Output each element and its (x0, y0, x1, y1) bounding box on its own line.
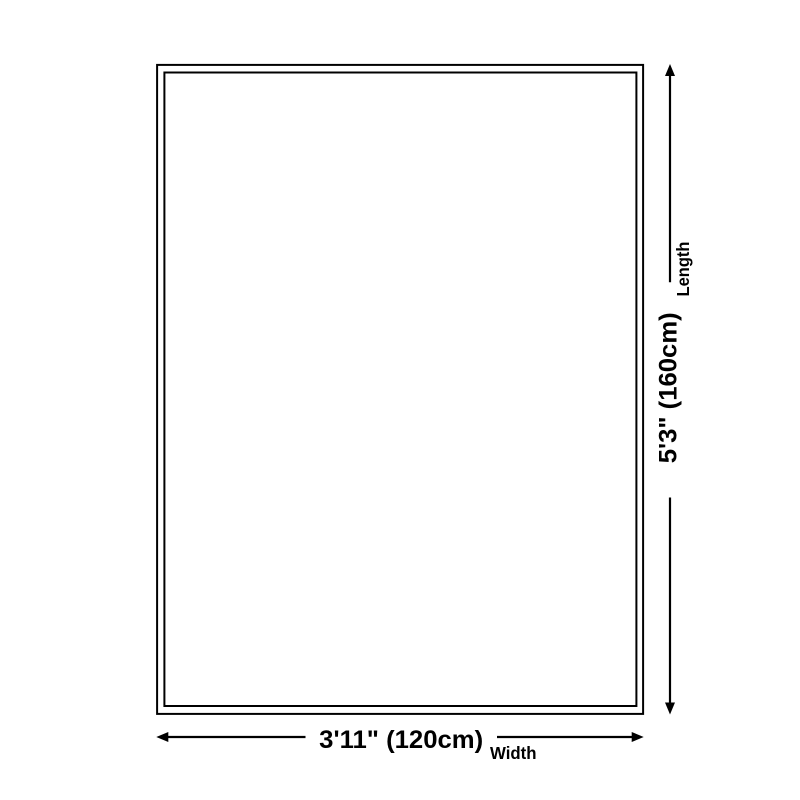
svg-text:5'3" (160cm): 5'3" (160cm) (655, 312, 683, 463)
svg-text:Length: Length (673, 242, 693, 297)
svg-text:3'11" (120cm): 3'11" (120cm) (319, 726, 483, 754)
svg-text:Width: Width (490, 743, 537, 763)
